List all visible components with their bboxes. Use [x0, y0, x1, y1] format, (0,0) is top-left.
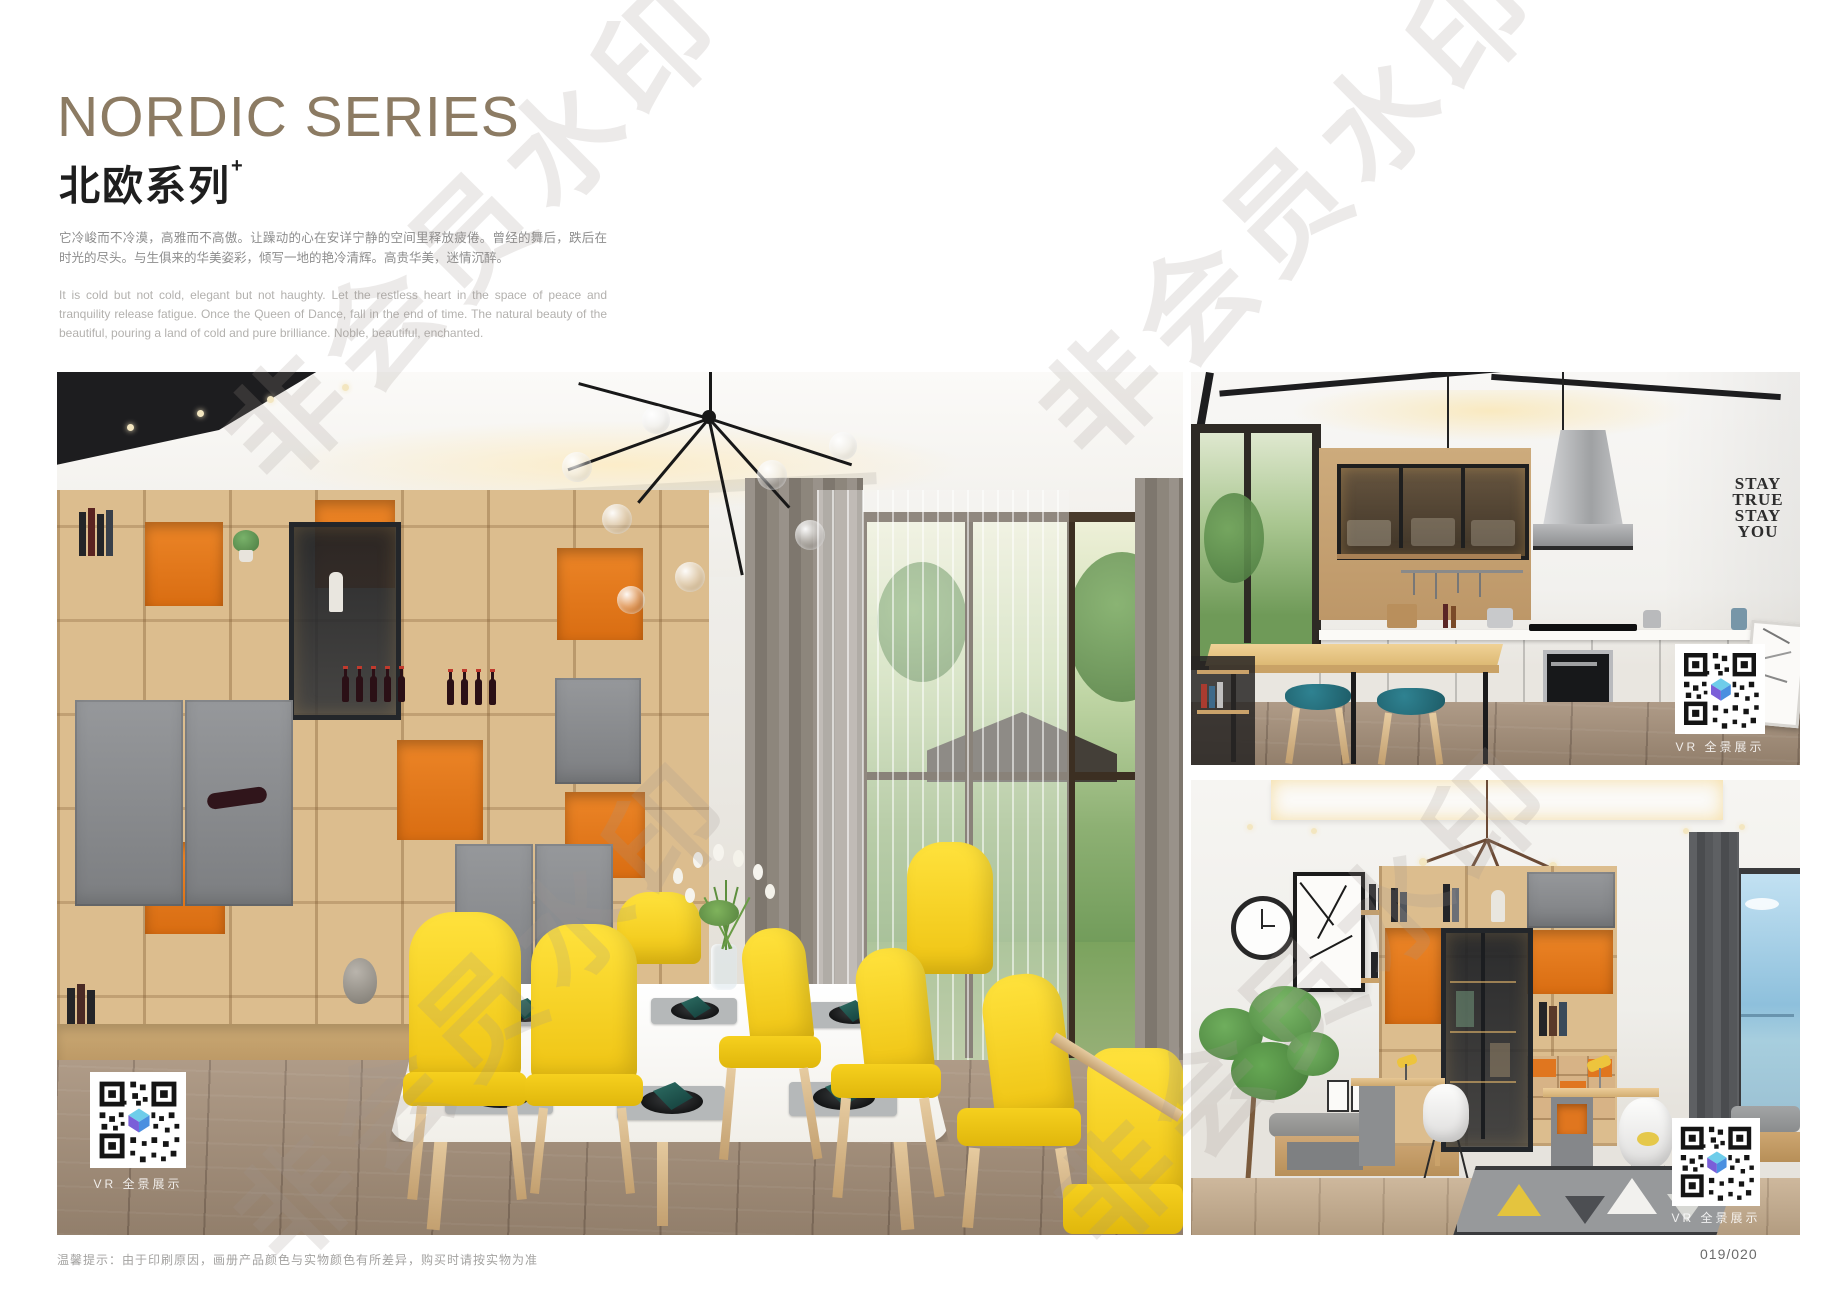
chandelier-stem: [709, 372, 712, 414]
potted-plant: [233, 530, 259, 552]
chair-seat: [957, 1108, 1081, 1146]
qr-code: [90, 1072, 186, 1168]
desk-left-pedestal: [1359, 1086, 1395, 1166]
book: [1549, 1006, 1557, 1036]
wine-bottle: [356, 676, 363, 702]
wine-bottle-row: [447, 677, 527, 709]
curtain-right: [1135, 478, 1183, 1082]
description-english: It is cold but not cold, elegant but not…: [59, 286, 607, 344]
chair-seat: [403, 1072, 527, 1106]
kitchen-photo: STAY TRUE STAY YOU VR 全景展示: [1191, 372, 1800, 765]
book: [106, 510, 113, 556]
book: [1539, 1002, 1547, 1036]
desk-left-top: [1351, 1078, 1445, 1086]
ceramic-jar: [343, 958, 377, 1004]
wine-bottle: [489, 679, 496, 705]
clock-hand-hour: [1261, 925, 1275, 927]
open-shelf: [1337, 554, 1521, 559]
kettle: [1643, 610, 1661, 628]
white-flower: [673, 868, 683, 884]
chandelier-globe: [757, 460, 787, 490]
book: [1391, 888, 1398, 922]
book: [79, 512, 86, 556]
oven-handle: [1551, 662, 1597, 666]
chandelier-globe: [642, 406, 670, 434]
ceiling-recess: [1271, 780, 1723, 820]
chandelier-globe: [602, 504, 632, 534]
wine-bottle: [342, 676, 349, 702]
page-subtitle: 北欧系列+: [59, 152, 245, 212]
wine-bottle: [398, 676, 405, 702]
chair-seat: [525, 1074, 643, 1106]
kitchen-window: [1191, 424, 1321, 670]
white-flower: [753, 864, 763, 880]
book: [1559, 1002, 1567, 1036]
island-leg: [1483, 672, 1488, 764]
hanging-utensil: [1435, 573, 1437, 599]
study-window: [1735, 868, 1800, 1118]
shelf-cell-orange: [397, 740, 483, 840]
chair-seat: [719, 1036, 821, 1068]
book: [1217, 682, 1223, 708]
book: [1201, 684, 1207, 708]
wine-bottle: [370, 676, 377, 702]
cabinet-divider: [1461, 468, 1465, 548]
wine-bottle: [475, 679, 482, 705]
countertop: [1319, 630, 1800, 640]
cooking-pot: [1487, 608, 1513, 628]
decal-line: YOU: [1731, 524, 1785, 540]
book: [97, 514, 104, 556]
dining-room-photo: VR 全景展示: [57, 372, 1183, 1235]
oil-bottle: [1443, 604, 1448, 628]
lamp-arm: [1599, 1068, 1601, 1088]
white-flower: [693, 852, 703, 868]
lamp-arm: [1405, 1064, 1407, 1080]
gray-cabinet-door: [75, 700, 183, 906]
gray-cabinet-door: [1527, 872, 1615, 928]
description-chinese: 它冷峻而不冷漠，高雅而不高傲。让躁动的心在安详宁静的空间里释放疲倦。曾经的舞后，…: [59, 228, 607, 269]
plant-foliage: [1287, 1032, 1339, 1076]
ceiling-spotlight: [1247, 824, 1253, 830]
abstract-art-frame: [1293, 872, 1365, 992]
white-flower: [733, 850, 744, 867]
subtitle-plus: +: [231, 155, 245, 177]
ceiling-spotlight: [1311, 828, 1317, 834]
hanging-utensil: [1413, 573, 1415, 595]
vase-in-cabinet: [329, 572, 343, 612]
pendant-bulb: [1419, 858, 1427, 866]
wall-clock: [1231, 896, 1295, 960]
wine-bottle: [384, 676, 391, 702]
dining-chair-yellow: [907, 842, 993, 974]
cloud: [1745, 898, 1779, 910]
page-title: NORDIC SERIES: [57, 84, 520, 150]
jars-silhouette: [1471, 520, 1515, 546]
vr-label: VR 全景展示: [1657, 1209, 1775, 1226]
hanging-utensil: [1479, 573, 1481, 597]
rug-triangle-yellow: [1497, 1184, 1541, 1216]
plant-pot: [239, 550, 253, 562]
utensil-rail: [1401, 570, 1523, 573]
desk-right-top: [1543, 1088, 1659, 1097]
wine-bottle: [447, 679, 454, 705]
book: [88, 508, 95, 556]
armchair-seat: [1063, 1184, 1183, 1234]
qr-code: [1672, 1118, 1760, 1206]
wall-decal: STAY TRUE STAY YOU: [1731, 476, 1785, 541]
jars-silhouette: [1411, 518, 1455, 546]
pendant-stem: [1486, 780, 1488, 838]
table-leg: [657, 1138, 668, 1226]
book: [1371, 952, 1378, 978]
foreground-shelf: [1191, 656, 1255, 765]
lit-shelf: [1450, 1081, 1516, 1083]
dark-curtain: [1689, 832, 1739, 1132]
jars-silhouette: [1347, 520, 1391, 546]
book: [1209, 686, 1215, 708]
bench-drawer: [1287, 1142, 1363, 1170]
gas-cooktop: [1529, 624, 1637, 631]
pedestal-orange-cubby: [1557, 1104, 1587, 1134]
white-flower: [713, 844, 724, 861]
display-item: [1456, 991, 1474, 1027]
glass-vase: [711, 944, 737, 990]
upper-glass-cabinet: [1337, 464, 1529, 560]
dining-chair-yellow: [409, 912, 521, 1082]
white-flower: [685, 888, 695, 903]
range-hood-base: [1533, 524, 1633, 550]
shelf-cell-orange: [145, 522, 223, 606]
cabinet-divider: [1399, 468, 1403, 548]
gray-cabinet-door: [555, 678, 641, 784]
ceiling-spotlight: [342, 384, 349, 391]
subtitle-text: 北欧系列: [59, 163, 231, 209]
book: [1400, 892, 1407, 922]
dining-chair-yellow: [531, 924, 637, 1082]
qr-code: [1675, 644, 1765, 734]
display-item: [1490, 1043, 1510, 1077]
frame-sketch-line: [1763, 628, 1790, 644]
island-leg: [1351, 672, 1356, 764]
bar-stool-teal: [1285, 684, 1351, 710]
cove-light-glow: [1291, 390, 1691, 442]
cutting-board: [1387, 604, 1417, 628]
ceiling-spotlight: [1739, 824, 1745, 830]
ceiling-spotlight: [197, 410, 204, 417]
shelf-board: [1197, 710, 1249, 714]
art-line: [1309, 935, 1352, 959]
shelf-cell-orange: [1385, 928, 1441, 1024]
cubby-orange: [1530, 1059, 1556, 1077]
catalog-page: NORDIC SERIES 北欧系列+ 它冷峻而不冷漠，高雅而不高傲。让躁动的心…: [0, 0, 1836, 1307]
chandelier-globe: [829, 432, 857, 460]
hanging-utensil: [1457, 573, 1459, 593]
oil-bottle: [1451, 606, 1456, 628]
white-desk-chair: [1423, 1084, 1469, 1142]
ceiling-spotlight: [127, 424, 134, 431]
page-number: 019/020: [1700, 1246, 1758, 1262]
rug-triangle-dark: [1565, 1196, 1605, 1224]
coffee-maker: [1731, 608, 1747, 630]
chandelier-globe: [617, 586, 645, 614]
vr-label: VR 全景展示: [1660, 738, 1780, 755]
study-room-photo: VR 全景展示: [1191, 780, 1800, 1235]
shelf-cell-orange: [1527, 930, 1613, 994]
chandelier-globe: [562, 452, 592, 482]
chair-cushion-yellow: [1637, 1132, 1659, 1146]
chair-seat: [831, 1064, 941, 1098]
wine-bottle: [461, 679, 468, 705]
standing-frame: [1327, 1080, 1349, 1112]
bar-stool-teal: [1377, 688, 1445, 715]
footer-note: 温馨提示：由于印刷原因，画册产品颜色与实物颜色有所差异，购买时请按实物为准: [57, 1251, 538, 1268]
rug-triangle-white: [1607, 1178, 1657, 1214]
tree-outside: [1204, 493, 1264, 583]
lit-shelf: [1450, 1031, 1516, 1033]
sea-horizon: [1741, 1014, 1794, 1017]
wine-bottle-row: [342, 672, 432, 706]
flower-leaves: [699, 900, 739, 926]
lit-shelf: [1450, 981, 1516, 983]
chandelier-globe: [795, 520, 825, 550]
book: [1443, 884, 1450, 922]
vr-label: VR 全景展示: [75, 1175, 201, 1192]
white-vase: [1491, 890, 1505, 922]
cabinet-divider: [1481, 933, 1485, 1139]
chandelier-globe: [675, 562, 705, 592]
book: [1452, 888, 1459, 922]
ceiling-spotlight: [267, 396, 274, 403]
book: [1369, 884, 1376, 910]
white-flower: [765, 884, 775, 899]
shelf-board: [1197, 670, 1249, 674]
